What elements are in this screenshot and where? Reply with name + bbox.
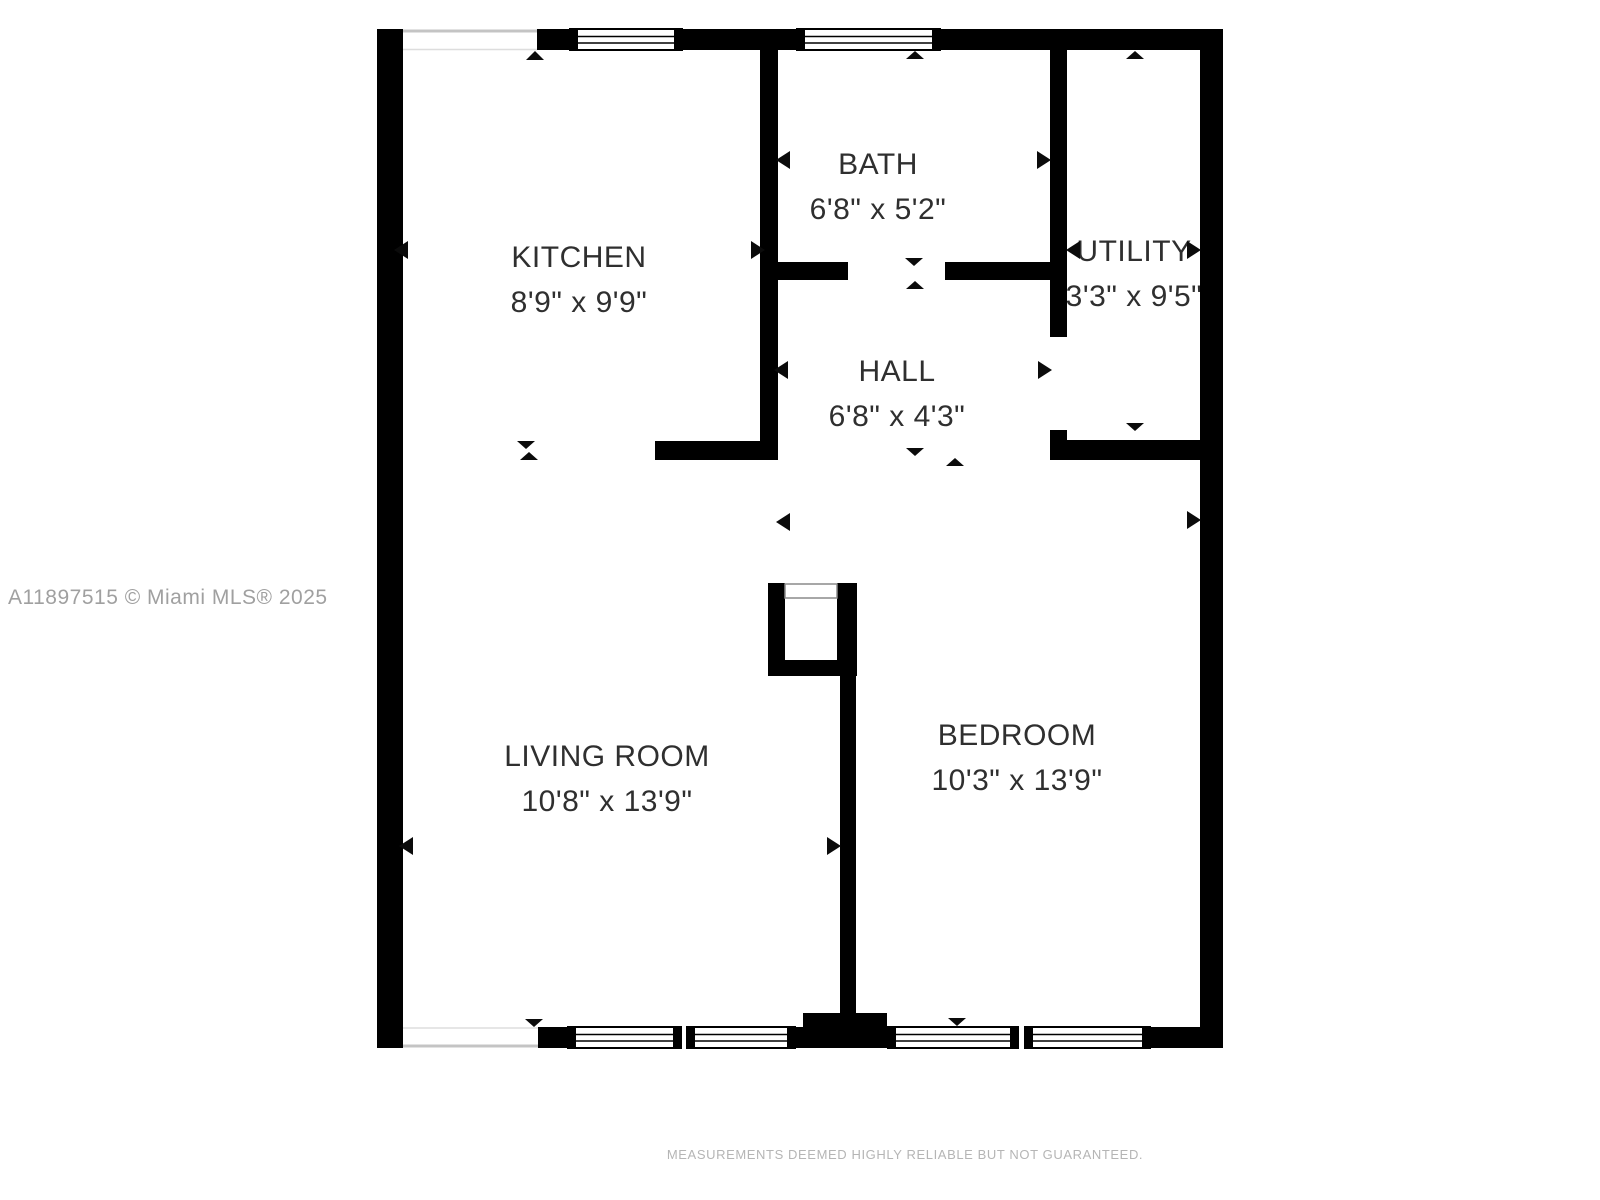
arrow-bath-top: [906, 51, 924, 59]
room-label-bedroom: BEDROOM 10'3" x 13'9": [931, 713, 1102, 803]
walls: [377, 29, 1223, 1048]
dimension-arrows: [394, 51, 1201, 1027]
wall-bath-hall-right: [945, 262, 1067, 280]
arrow-living-right: [827, 837, 841, 855]
wall-bottom-junction: [803, 1013, 887, 1029]
room-dimensions: 6'8" x 4'3": [829, 394, 966, 439]
arrow-hall-top: [906, 281, 924, 289]
wall-closet-left: [768, 583, 785, 676]
wall-kitchen-south: [655, 441, 778, 460]
arrow-living-top: [520, 452, 538, 460]
window: [797, 29, 940, 50]
wall-living-bedroom-divider: [840, 660, 856, 1027]
window-cap: [673, 1027, 681, 1048]
arrow-bedroom-top: [946, 458, 964, 466]
window: [1025, 1027, 1150, 1048]
floorplan-page: KITCHEN 8'9" x 9'9" BATH 6'8" x 5'2" UTI…: [0, 0, 1600, 1200]
arrow-kitchen-right: [751, 241, 765, 259]
wall-exterior-top: [940, 29, 1223, 50]
arrow-bath-bottom: [905, 258, 923, 266]
wall-exterior-top: [537, 29, 570, 50]
door-openings: [403, 31, 837, 1046]
room-dimensions: 6'8" x 5'2": [810, 187, 947, 232]
room-dimensions: 10'3" x 13'9": [931, 758, 1102, 803]
wall-exterior-left: [377, 29, 403, 1048]
window-frame: [888, 1027, 1018, 1048]
wall-exterior-bottom: [538, 1027, 568, 1048]
wall-bath-hall-left: [760, 262, 848, 280]
arrow-kitchen-bottom: [517, 441, 535, 449]
room-name: HALL: [829, 349, 966, 394]
room-dimensions: 10'8" x 13'9": [504, 779, 710, 824]
window-cap: [1142, 1027, 1150, 1048]
window: [570, 29, 682, 50]
arrow-hall-right: [1038, 361, 1052, 379]
window-cap: [674, 29, 682, 50]
room-label-utility: UTILITY 3'3" x 9'5": [1066, 229, 1203, 319]
wall-closet-bottom: [768, 660, 857, 676]
arrow-bedroom-left: [776, 513, 790, 531]
room-name: LIVING ROOM: [504, 734, 710, 779]
arrow-utility-top: [1126, 51, 1144, 59]
arrow-living-left: [399, 837, 413, 855]
room-name: BATH: [810, 142, 947, 187]
arrow-bath-left: [776, 151, 790, 169]
arrow-kitchen-top: [526, 51, 544, 60]
window-frame: [568, 1027, 681, 1048]
window-cap: [932, 29, 940, 50]
window-frame: [1025, 1027, 1150, 1048]
window-cap: [1010, 1027, 1018, 1048]
wall-exterior-bottom: [795, 1027, 888, 1048]
window-cap: [1025, 1027, 1033, 1048]
wall-closet-right: [837, 583, 857, 676]
arrow-bedroom-right: [1187, 511, 1201, 529]
arrow-living-bottom: [525, 1019, 543, 1027]
measurements-disclaimer: MEASUREMENTS DEEMED HIGHLY RELIABLE BUT …: [667, 1147, 1143, 1162]
arrow-bath-right: [1037, 151, 1051, 169]
closet-door: [785, 584, 837, 598]
wall-kitchen-bath-divider: [760, 50, 778, 460]
room-dimensions: 3'3" x 9'5": [1066, 274, 1203, 319]
room-name: BEDROOM: [931, 713, 1102, 758]
window-cap: [787, 1027, 795, 1048]
room-label-kitchen: KITCHEN 8'9" x 9'9": [511, 235, 648, 325]
arrow-bedroom-bottom: [948, 1018, 966, 1026]
window-cap: [797, 29, 805, 50]
arrow-utility-bottom: [1126, 423, 1144, 431]
window: [888, 1027, 1018, 1048]
room-name: UTILITY: [1066, 229, 1203, 274]
wall-utility-stub: [1050, 430, 1067, 460]
room-name: KITCHEN: [511, 235, 648, 280]
room-label-living-room: LIVING ROOM 10'8" x 13'9": [504, 734, 710, 824]
window-cap: [568, 1027, 576, 1048]
wall-exterior-right: [1200, 29, 1223, 1048]
wall-exterior-top: [682, 29, 797, 50]
room-label-hall: HALL 6'8" x 4'3": [829, 349, 966, 439]
wall-bath-utility-divider: [1050, 50, 1067, 337]
window-frame: [570, 29, 682, 50]
window: [568, 1027, 681, 1048]
window-frame: [687, 1027, 795, 1048]
wall-exterior-bottom: [1150, 1027, 1223, 1048]
window: [687, 1027, 795, 1048]
arrow-kitchen-left: [394, 241, 408, 259]
room-label-bath: BATH 6'8" x 5'2": [810, 142, 947, 232]
mls-watermark: A11897515 © Miami MLS® 2025: [8, 586, 328, 610]
arrow-hall-bottom: [906, 448, 924, 456]
window-frame: [797, 29, 940, 50]
window-cap: [570, 29, 578, 50]
window-cap: [687, 1027, 695, 1048]
wall-utility-south: [1050, 440, 1223, 460]
room-dimensions: 8'9" x 9'9": [511, 280, 648, 325]
window-cap: [888, 1027, 896, 1048]
arrow-hall-left: [774, 361, 788, 379]
